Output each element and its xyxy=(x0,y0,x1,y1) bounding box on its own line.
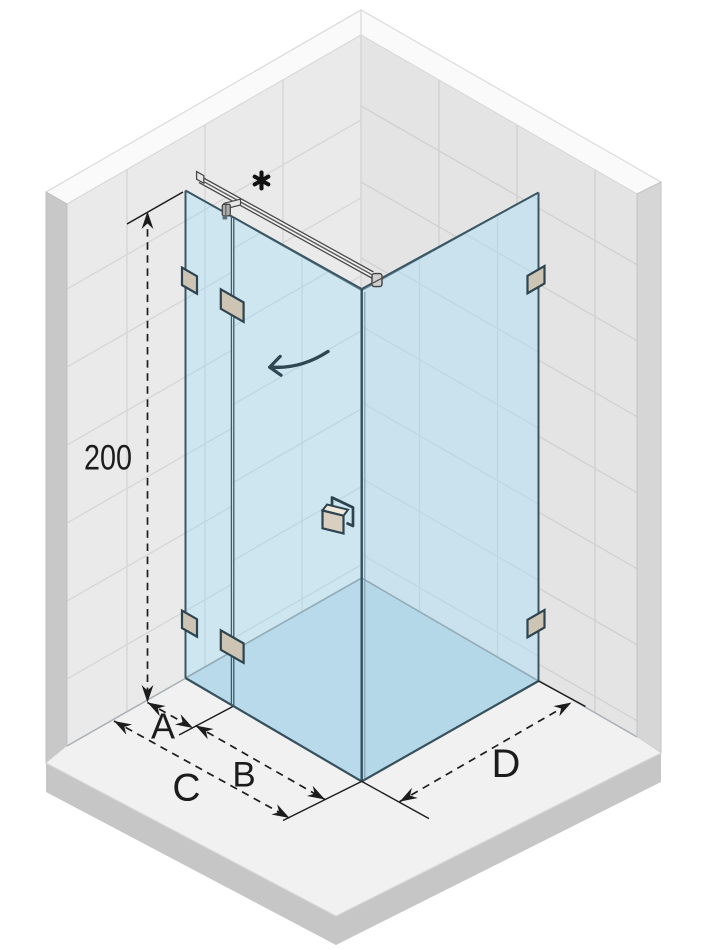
svg-text:200: 200 xyxy=(84,439,132,478)
svg-text:C: C xyxy=(172,767,200,810)
svg-text:A: A xyxy=(151,706,175,747)
svg-text:D: D xyxy=(492,742,521,786)
